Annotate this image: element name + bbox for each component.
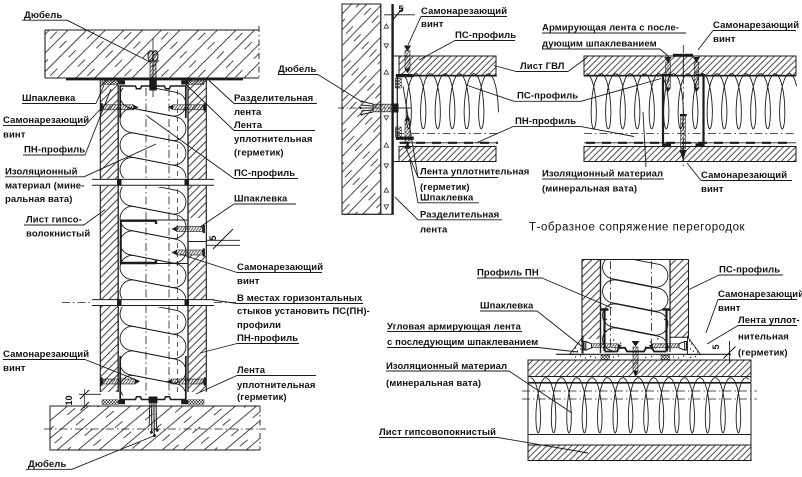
svg-text:Дюбель: Дюбель (278, 64, 316, 75)
svg-text:Профиль ПН: Профиль ПН (477, 268, 539, 279)
svg-text:(минеральная вата): (минеральная вата) (542, 184, 637, 195)
svg-text:Лента уплотнительная: Лента уплотнительная (420, 167, 529, 178)
svg-text:(герметик): (герметик) (237, 392, 287, 403)
svg-text:10: 10 (64, 395, 74, 405)
svg-text:винт: винт (3, 130, 26, 141)
svg-text:Самонарезающий: Самонарезающий (718, 289, 802, 300)
svg-text:Шпаклевка: Шпаклевка (22, 93, 76, 104)
svg-text:ПН-профиль: ПН-профиль (237, 333, 298, 344)
svg-text:ПС-профиль: ПС-профиль (234, 168, 295, 179)
svg-text:5: 5 (711, 344, 721, 349)
svg-text:лента: лента (420, 225, 448, 236)
svg-text:Лист гипсо-: Лист гипсо- (26, 215, 82, 226)
svg-text:Лента уплот-: Лента уплот- (738, 315, 800, 326)
svg-text:ПН-профиль: ПН-профиль (24, 145, 85, 156)
svg-text:ПН-профиль: ПН-профиль (515, 116, 576, 127)
svg-text:(минеральная вата): (минеральная вата) (386, 378, 481, 389)
svg-text:Шпаклевка: Шпаклевка (420, 193, 474, 204)
svg-text:Самонарезающий: Самонарезающий (421, 6, 507, 17)
svg-text:5: 5 (398, 4, 403, 14)
svg-text:Изоляционный материал: Изоляционный материал (386, 361, 507, 372)
svg-text:(герметик): (герметик) (738, 348, 788, 359)
svg-text:с последующим шпаклеванием: с последующим шпаклеванием (387, 337, 538, 348)
svg-text:винт: винт (713, 34, 736, 45)
svg-text:Изоляционный материал: Изоляционный материал (542, 169, 663, 180)
svg-text:Дюбель: Дюбель (28, 459, 66, 470)
svg-text:винт: винт (421, 19, 444, 30)
svg-text:Разделительная: Разделительная (420, 210, 499, 221)
svg-text:В местах горизонтальных: В местах горизонтальных (237, 293, 363, 304)
svg-text:Изоляционный: Изоляционный (5, 167, 78, 178)
svg-text:Дюбель: Дюбель (24, 10, 62, 21)
svg-text:ПС-профиль: ПС-профиль (719, 265, 780, 276)
svg-text:винт: винт (3, 363, 26, 374)
svg-text:Самонарезающий: Самонарезающий (713, 20, 799, 31)
svg-text:лента: лента (234, 107, 262, 118)
svg-text:ПС-профиль: ПС-профиль (517, 91, 578, 102)
svg-text:уплотнительная: уплотнительная (237, 380, 316, 391)
svg-text:Лист гипсовопокнистый: Лист гипсовопокнистый (379, 427, 496, 438)
svg-text:Самонарезающий: Самонарезающий (3, 115, 89, 126)
svg-text:профили: профили (237, 320, 281, 331)
svg-text:ПС-профиль: ПС-профиль (455, 30, 516, 41)
svg-text:винт: винт (237, 276, 260, 287)
svg-text:уплотнительная: уплотнительная (234, 134, 313, 145)
svg-text:Лист ГВЛ: Лист ГВЛ (520, 61, 565, 72)
svg-text:винт: винт (701, 184, 724, 195)
svg-text:винт: винт (718, 303, 741, 314)
svg-text:5: 5 (208, 235, 218, 240)
svg-text:стыков установить ПС(ПН)-: стыков установить ПС(ПН)- (237, 306, 370, 317)
svg-text:Армирующая лента с после-: Армирующая лента с после- (542, 23, 679, 34)
svg-text:ральная вата): ральная вата) (5, 194, 73, 205)
svg-text:(герметик): (герметик) (420, 182, 470, 193)
svg-text:волокнистый: волокнистый (26, 229, 90, 240)
svg-text:Самонарезающий: Самонарезающий (701, 170, 787, 181)
svg-text:Шпаклевка: Шпаклевка (234, 194, 288, 205)
svg-text:Шпаклевка: Шпаклевка (480, 301, 534, 312)
svg-text:Самонарезающий: Самонарезающий (237, 262, 323, 273)
svg-text:материал (мине-: материал (мине- (5, 181, 84, 192)
svg-text:Лента: Лента (237, 365, 266, 376)
svg-text:(герметик): (герметик) (234, 148, 284, 159)
svg-text:Разделительная: Разделительная (234, 93, 313, 104)
svg-text:дующим шпаклеванием: дующим шпаклеванием (542, 39, 657, 50)
svg-text:Самонарезающий: Самонарезающий (3, 349, 89, 360)
svg-text:Угловая армирующая лента: Угловая армирующая лента (387, 322, 522, 333)
svg-text:нительная: нительная (738, 332, 789, 343)
svg-text:Т-образное сопряжение перегоро: Т-образное сопряжение перегородок (529, 222, 746, 234)
svg-text:Лента: Лента (234, 120, 263, 131)
